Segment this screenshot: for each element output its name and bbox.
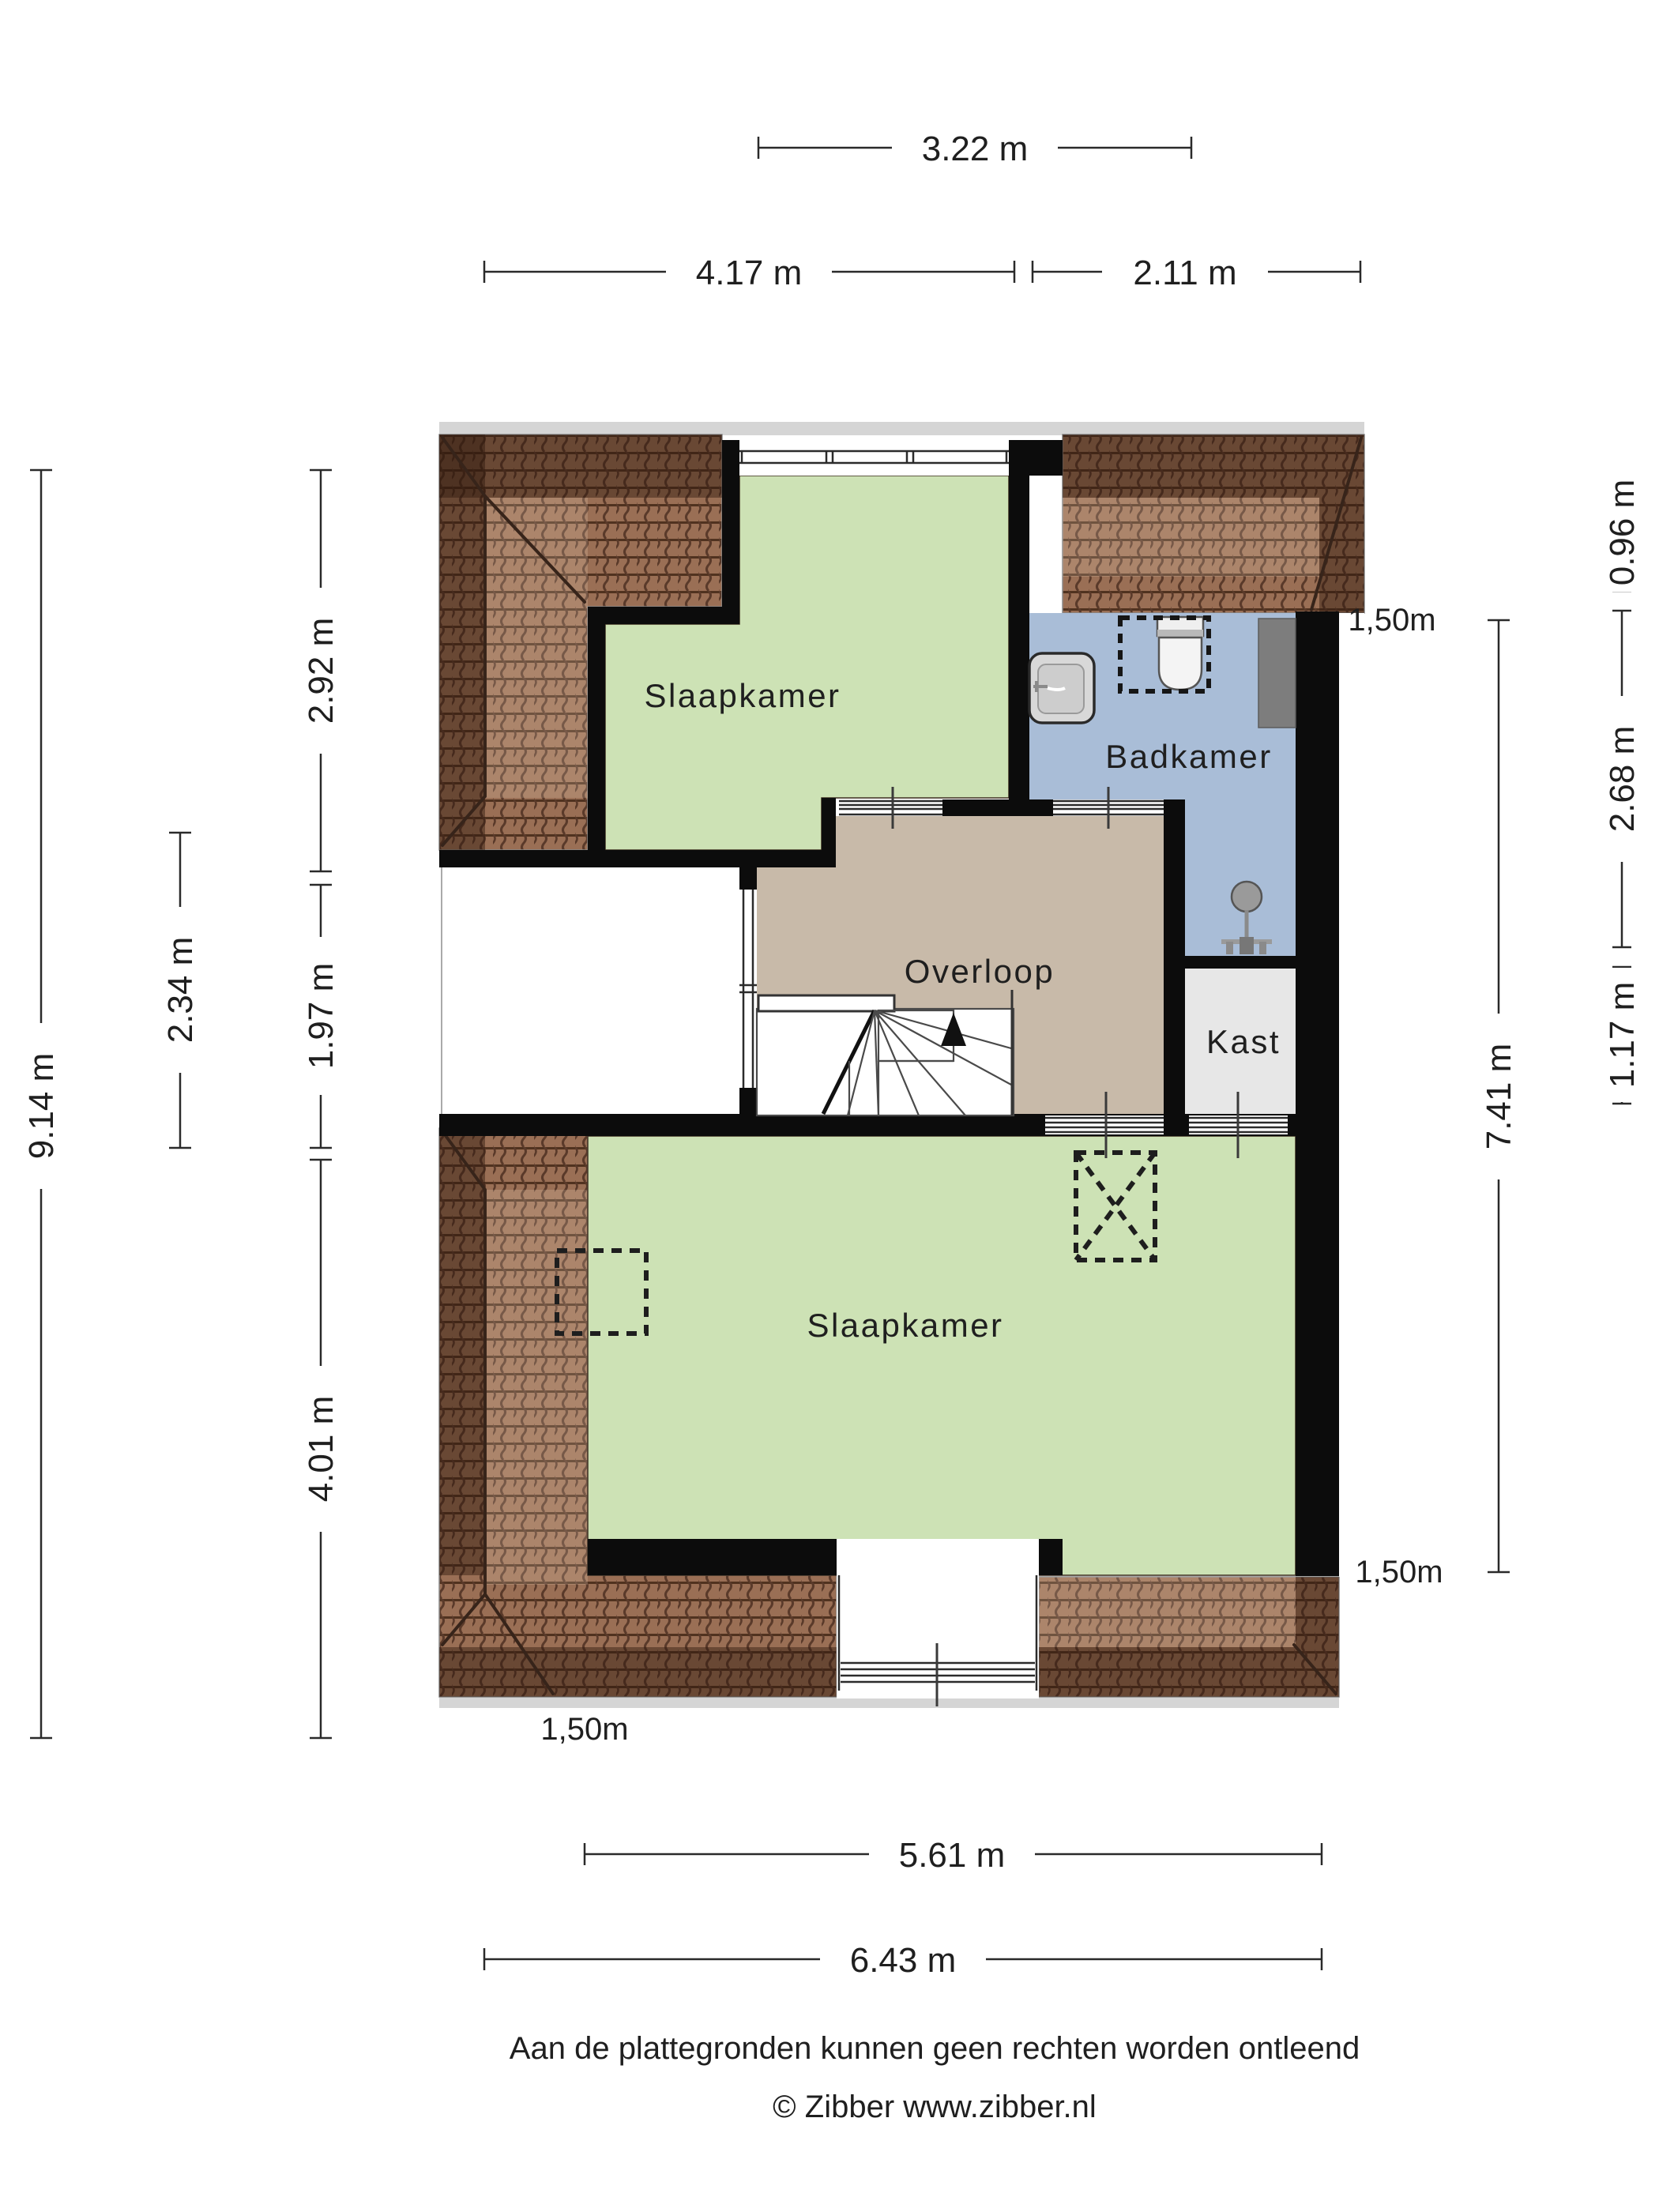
room-label-slaapkamer-1: Slaapkamer: [644, 677, 841, 714]
dimension-top-417: 4.17 m: [484, 250, 1014, 294]
eave-strip-top: [439, 422, 1364, 435]
note-150-bottom-left: 1,50m: [540, 1712, 628, 1747]
dim-label: 4.17 m: [696, 254, 803, 292]
dimension-top-322: 3.22 m: [758, 126, 1191, 170]
dim-label: 6.43 m: [850, 1941, 957, 1980]
dimension-right-741: 7.41 m: [1477, 620, 1521, 1572]
dimension-left-914: 9.14 m: [19, 470, 63, 1738]
dimension-right-096: 0.96 m: [1600, 473, 1644, 592]
dim-label: 4.01 m: [302, 1396, 340, 1503]
dim-label: 2.11 m: [1133, 254, 1236, 292]
room-label-badkamer: Badkamer: [1105, 738, 1272, 775]
window-void-vertical: [739, 890, 757, 1088]
room-label-slaapkamer-2: Slaapkamer: [807, 1307, 1003, 1344]
dim-label: 7.41 m: [1480, 1044, 1518, 1150]
dim-label: 3.22 m: [922, 130, 1029, 168]
dim-label: 2.92 m: [302, 618, 340, 724]
dim-label: 9.14 m: [22, 1053, 61, 1160]
footer-copyright: © Zibber www.zibber.nl: [773, 2090, 1097, 2124]
dimension-right-117: 1.17 m: [1600, 967, 1644, 1104]
floor-plan-page: Slaapkamer Badkamer Overloop Kast Slaapk…: [0, 0, 1659, 2212]
window-bay-south: [837, 1539, 1039, 1706]
note-150-top-right: 1,50m: [1348, 603, 1435, 638]
room-label-kast: Kast: [1206, 1023, 1281, 1060]
right-outside-strip: [1339, 613, 1364, 1577]
dimension-left-292: 2.92 m: [299, 470, 343, 871]
dim-label: 2.34 m: [161, 937, 200, 1044]
staircase: [757, 990, 1014, 1115]
void-area: [441, 867, 739, 1114]
floor-plan-svg: Slaapkamer Badkamer Overloop Kast Slaapk…: [0, 0, 1659, 2212]
toilet-icon: [1157, 617, 1203, 690]
footer: Aan de plattegronden kunnen geen rechten…: [510, 2031, 1360, 2124]
dimension-left-401: 4.01 m: [299, 1160, 343, 1738]
dimension-left-234: 2.34 m: [158, 833, 202, 1148]
dim-label: 2.68 m: [1603, 726, 1642, 833]
stair-landing: [758, 995, 894, 1011]
dimension-bottom-643: 6.43 m: [484, 1937, 1322, 1981]
dimension-top-211: 2.11 m: [1033, 250, 1360, 294]
dimension-left-197: 1.97 m: [299, 885, 343, 1148]
dim-label: 1.17 m: [1603, 982, 1642, 1089]
dimension-bottom-561: 5.61 m: [585, 1832, 1322, 1876]
dimension-right-268: 2.68 m: [1600, 611, 1644, 947]
sink-icon: [1029, 653, 1094, 723]
window-north: [739, 440, 1009, 476]
dim-label: 1.97 m: [302, 963, 340, 1070]
duct-shaft: [1258, 619, 1296, 728]
note-150-bottom-right: 1,50m: [1355, 1555, 1443, 1589]
room-label-overloop: Overloop: [905, 953, 1055, 990]
room-slaapkamer-2: [588, 1136, 1296, 1575]
dim-label: 5.61 m: [899, 1836, 1006, 1875]
eave-strip-bottom: [439, 1697, 1339, 1708]
footer-disclaimer: Aan de plattegronden kunnen geen rechten…: [510, 2031, 1360, 2066]
dim-label: 0.96 m: [1603, 480, 1642, 586]
